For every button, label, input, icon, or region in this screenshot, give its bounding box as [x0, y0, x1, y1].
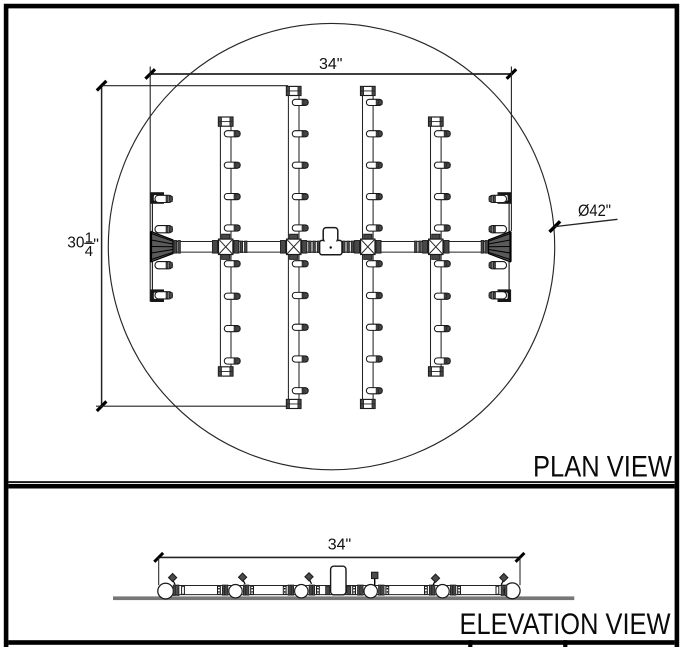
svg-text:ELEVATION VIEW: ELEVATION VIEW [460, 608, 671, 641]
svg-text:4: 4 [85, 244, 93, 260]
svg-text:34": 34" [328, 537, 351, 554]
svg-text:30: 30 [67, 234, 85, 251]
svg-text:PLAN VIEW: PLAN VIEW [533, 451, 672, 484]
svg-text:34": 34" [319, 56, 342, 73]
svg-text:": " [93, 236, 99, 253]
svg-text:Ø42": Ø42" [578, 202, 611, 220]
